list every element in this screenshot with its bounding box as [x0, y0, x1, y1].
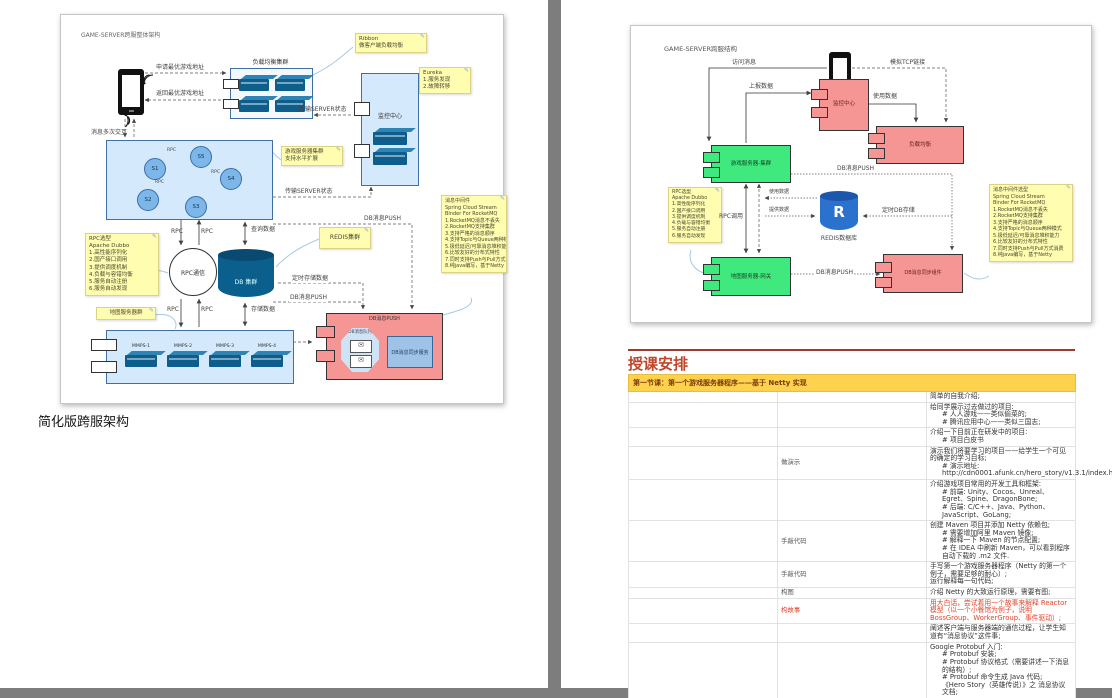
note-line: REDIS集群 [323, 234, 367, 242]
server-node: S3 [185, 196, 207, 218]
label-rpc: RPC [167, 307, 179, 314]
label-store-data: 存储数据 [251, 307, 275, 314]
label-rpc: RPC [201, 307, 213, 314]
monitor-center-box: 监控中心 [819, 79, 869, 131]
section-title: 授课安排 [628, 353, 688, 374]
sticky-note-mq: 消息中间件Spring Cloud StreamBinder For Rocke… [441, 195, 507, 273]
label-rpc-edge: RPC [155, 181, 164, 186]
port-tab [223, 79, 239, 89]
db-cluster-cylinder: DB 集群 [218, 255, 274, 297]
schedule-line: 阐述客户端与服务器端的通信过程，让学生知道有“消息协议”这件事; [930, 625, 1072, 640]
server-icon [373, 132, 407, 145]
schedule-cell-content: 介绍一下目前正在研发中的项目:# 项目白皮书 [927, 428, 1076, 446]
sticky-note-ribbon: Ribbon做客户端负载均衡 [355, 33, 427, 53]
schedule-row: 手敲代码创建 Maven 项目并添加 Netty 依赖包;# 需要增加阿里 Ma… [629, 521, 1076, 562]
sticky-note-map-server: 地图服务器群 [96, 307, 156, 320]
db-message-queue-octagon: DB消息队列 ✉ ✉ [341, 328, 379, 372]
port-tab [91, 361, 117, 373]
label-visit-message: 访问消息 [731, 60, 757, 67]
schedule-cell-spacer [629, 562, 778, 588]
schedule-row: 阐述客户端与服务器端的通信过程，让学生知道有“消息协议”这件事; [629, 624, 1076, 642]
note-line: 2.故障转移 [423, 84, 467, 91]
label-timed-store: 定时存储数据 [291, 276, 329, 283]
server-icon [275, 79, 305, 91]
schedule-row: 做演示演示我们将要学习的项目——给学生一个可见的确定的学习目标;# 演示地址: … [629, 446, 1076, 479]
note-line: 6.比较友好的分布式特性 [445, 250, 503, 257]
schedule-row: 构图介绍 Netty 的大致运行原理，需要有图; [629, 588, 1076, 599]
db-message-component-box: DB消息PUSH DB消息队列 ✉ ✉ DB消息同步服务 [326, 313, 443, 380]
schedule-line: # 后端: C/C++、Java、Python、JavaScript、GoLan… [930, 504, 1072, 519]
schedule-line: 用大白话，尝试着用一个故事来解释 Reactor 模型（以一个小餐馆为例子，说明… [930, 600, 1072, 623]
left-diagram-panel: GAME-SERVER跨服整体架构 申请最优游戏地址 返回最优游戏地址 消息多次… [60, 14, 504, 404]
load-balancer-title: 负载均衡集群 [230, 60, 311, 67]
port-tab [91, 339, 117, 351]
page-gap-vertical [548, 0, 561, 698]
db-message-queue-label: DB消息队列 [341, 331, 379, 336]
port-tab [811, 89, 828, 100]
label-rpc: RPC [171, 229, 183, 236]
game-server-cluster-box: 游戏服务器-集群 [711, 145, 791, 183]
sticky-note-rpc: RPC选型Apache Dubbo1.高性能序列化2.国产接口调用3.提供调度机… [85, 233, 159, 296]
label-db-push: DB消息PUSH [363, 216, 402, 223]
schedule-table: 第一节课：第一个游戏服务器程序——基于 Netty 实现 简单的自我介绍;给同学… [628, 374, 1076, 698]
label-db-push-top: DB消息PUSH [836, 166, 875, 173]
server-label: MMPS-1 [125, 344, 157, 349]
note-line: 2.国产接口调用 [89, 257, 155, 264]
map-server-cluster-box: MMPS-1 MMPS-2 MMPS-3 MMPS-4 [106, 330, 294, 384]
sticky-note-redis: REDIS集群 [319, 227, 371, 249]
schedule-cell-content: 用大白话，尝试着用一个故事来解释 Reactor 模型（以一个小餐馆为例子，说明… [927, 598, 1076, 624]
label-rpc-call: RPC调用 [719, 214, 743, 221]
label-message-exchange: 消息多次交互 [91, 130, 127, 137]
schedule-cell-label [778, 624, 927, 642]
label-tcp-link: 模拟TCP链接 [889, 60, 926, 67]
schedule-cell-label: 构图 [778, 588, 927, 599]
game-server-nodes-box: S1 S5 S2 S4 S3 RPC RPC RPC [106, 140, 273, 220]
server-node: S4 [220, 168, 242, 190]
label-server-state-2: 传输SERVER状态 [285, 189, 333, 196]
rpc-communication-circle: RPC通信 [169, 248, 217, 296]
schedule-row: Google Protobuf 入门:# Protobuf 安装;# Proto… [629, 642, 1076, 698]
note-line: 做客户端负载均衡 [359, 43, 423, 50]
schedule-row: 构故事用大白话，尝试着用一个故事来解释 Reactor 模型（以一个小餐馆为例子… [629, 598, 1076, 624]
schedule-cell-label [778, 392, 927, 403]
schedule-cell-content: 手写第一个游戏服务器程序（Netty 的第一个例子，需要足够的耐心）;运行解释每… [927, 562, 1076, 588]
document-view: GAME-SERVER跨服整体架构 申请最优游戏地址 返回最优游戏地址 消息多次… [0, 0, 1112, 698]
port-tab [703, 167, 720, 178]
port-tab [223, 99, 239, 109]
server-icon: MMPS-1 [125, 355, 157, 367]
right-diagram-connectors [631, 26, 1091, 322]
label-response-address: 返回最优游戏地址 [156, 91, 204, 98]
schedule-cell-spacer [629, 521, 778, 562]
right-diagram-panel: GAME-SERVER跨服结构 访问消息 模拟TCP链接 监控中心 上报数据 使… [630, 25, 1092, 323]
sticky-note-mq: 消息中间件选型Spring Cloud StreamBinder For Roc… [989, 184, 1073, 262]
server-icon: MMPS-3 [209, 355, 241, 367]
port-tab [811, 107, 828, 118]
left-page-caption: 简化版跨服架构 [38, 411, 129, 430]
schedule-cell-label: 手敲代码 [778, 521, 927, 562]
db-sync-component-label: DB消息同步组件 [884, 271, 962, 277]
schedule-cell-content: 创建 Maven 项目并添加 Netty 依赖包;# 需要增加阿里 Maven … [927, 521, 1076, 562]
schedule-row: 简单的自我介绍; [629, 392, 1076, 403]
envelope-icon: ✉ [350, 340, 372, 353]
note-line: Binder For RocketMQ [445, 211, 503, 218]
server-label: MMPS-2 [167, 344, 199, 349]
label-db-push-2: DB消息PUSH [289, 295, 328, 302]
schedule-cell-label: 做演示 [778, 446, 927, 479]
note-line: RPC选型 [89, 236, 155, 243]
note-line: 支持水平扩展 [285, 156, 339, 163]
schedule-line: # 演示地址: http://cdn0001.afunk.cn/hero_sto… [930, 463, 1072, 478]
server-node: S2 [137, 189, 159, 211]
label-rpc: RPC [201, 229, 213, 236]
load-balancer-label: 负载均衡 [877, 142, 963, 148]
server-label: MMPS-4 [251, 344, 283, 349]
label-db-push-bottom: DB消息PUSH [815, 270, 854, 277]
port-tab [875, 277, 892, 288]
db-sync-service-label: DB消息同步服务 [391, 349, 428, 356]
sticky-note-eureka: Eureka1.服务发现2.故障转移 [419, 67, 471, 94]
note-line: 2.RocketMQ支持集群 [445, 224, 503, 231]
schedule-cell-content: 阐述客户端与服务器端的通信过程，让学生知道有“消息协议”这件事; [927, 624, 1076, 642]
port-tab [354, 144, 370, 158]
port-tab [703, 280, 720, 291]
schedule-line: 运行解释每一句代码; [930, 578, 1072, 586]
port-tab [316, 326, 335, 338]
server-icon [239, 79, 269, 91]
note-line: 4.支持Topic与Queue两种模式 [445, 237, 503, 244]
schedule-cell-content: 给同学展示过去做过的项目:# 人人游戏——类似偷菜的;# 腾讯应用中心——类似三… [927, 402, 1076, 428]
note-line: 地图服务器群 [100, 310, 152, 317]
label-request-address: 申请最优游戏地址 [156, 65, 204, 72]
schedule-cell-spacer [629, 428, 778, 446]
label-rpc-edge: RPC [211, 171, 220, 176]
monitor-center-label: 监控中心 [362, 114, 418, 121]
schedule-line: # 项目白皮书 [930, 437, 1072, 445]
phone-icon [118, 69, 144, 115]
schedule-cell-content: 演示我们将要学习的项目——给学生一个可见的确定的学习目标;# 演示地址: htt… [927, 446, 1076, 479]
schedule-cell-spacer [629, 402, 778, 428]
schedule-row: 介绍一下目前正在研发中的项目:# 项目白皮书 [629, 428, 1076, 446]
schedule-line: # 腾讯应用中心——类似三国志; [930, 419, 1072, 427]
redis-icon: R [820, 196, 858, 230]
schedule-cell-spacer [629, 480, 778, 521]
schedule-row: 给同学展示过去做过的项目:# 人人游戏——类似偷菜的;# 腾讯应用中心——类似三… [629, 402, 1076, 428]
note-line: 3.提供调度机制 [89, 265, 155, 272]
server-label: MMPS-3 [209, 344, 241, 349]
schedule-row: 介绍游戏项目常用的开发工具和框架:# 前端: Unity、Cocos、Unrea… [629, 480, 1076, 521]
note-line: 4.支持Topic与Queue两种模式 [993, 226, 1069, 233]
db-sync-component-box: DB消息同步组件 [883, 254, 963, 293]
port-tab [868, 148, 885, 159]
server-node: S1 [144, 158, 166, 180]
schedule-line: 介绍 Netty 的大致运行原理，需要有图; [930, 589, 1072, 597]
schedule-cell-spacer [629, 624, 778, 642]
schedule-cell-label: 手敲代码 [778, 562, 927, 588]
note-line: 6.服务自动发现 [89, 286, 155, 293]
schedule-table-body: 简单的自我介绍;给同学展示过去做过的项目:# 人人游戏——类似偷菜的;# 腾讯应… [629, 392, 1076, 698]
label-query-data: 查询数据 [251, 227, 275, 234]
sticky-note-rpc: RPC选型Apache Dubbo1.高性能序列化2.国产接口调用3.提供调度机… [668, 187, 722, 243]
label-use-data-1: 使用数据 [873, 94, 897, 101]
note-line: 5.服务自动注册 [89, 279, 155, 286]
db-sync-service-box: DB消息同步服务 [387, 336, 433, 368]
schedule-line: # 在 IDEA 中刷新 Maven，可以看到程序自动下载的 .m2 文件. [930, 545, 1072, 560]
redis-label: REDIS数据库 [811, 236, 867, 243]
schedule-line: 《Hero Story（英雄传说）》之 消息协议文档; [930, 682, 1072, 697]
game-server-cluster-label: 游戏服务器-集群 [712, 161, 790, 167]
load-balancer-box: 负载均衡 [876, 126, 964, 164]
monitor-center-label: 监控中心 [820, 101, 868, 107]
map-server-gateway-label: 地图服务器-网关 [712, 274, 790, 280]
schedule-cell-content: 简单的自我介绍; [927, 392, 1076, 403]
schedule-cell-spacer [629, 392, 778, 403]
envelope-icon: ✉ [350, 355, 372, 368]
left-diagram-title: GAME-SERVER跨服整体架构 [81, 33, 160, 40]
schedule-line: 演示我们将要学习的项目——给学生一个可见的确定的学习目标; [930, 448, 1072, 463]
schedule-line: # 前端: Unity、Cocos、Unreal、Egret、Spine、Dra… [930, 489, 1072, 504]
map-server-gateway-box: 地图服务器-网关 [711, 257, 791, 296]
schedule-cell-content: 介绍游戏项目常用的开发工具和框架:# 前端: Unity、Cocos、Unrea… [927, 480, 1076, 521]
server-node: S5 [190, 146, 212, 168]
label-rpc-edge: RPC [167, 149, 176, 154]
server-icon [239, 100, 269, 112]
note-line: 4.负载与容错均衡 [89, 272, 155, 279]
schedule-line: # Protobuf 协议格式（需要讲述一下消息的结构）; [930, 659, 1072, 674]
monitor-center-box: 监控中心 [361, 73, 419, 186]
server-icon: MMPS-2 [167, 355, 199, 367]
note-line: 8.纯java编写，基于Netty [993, 252, 1069, 259]
section-divider [628, 349, 1075, 351]
note-line: 8.纯java编写，基于Netty [445, 263, 503, 270]
note-line: 6.服务自动发现 [672, 234, 718, 240]
label-db-push-inner: DB消息PUSH [327, 317, 442, 323]
db-cluster-label: DB 集群 [218, 277, 274, 286]
schedule-header-row: 第一节课：第一个游戏服务器程序——基于 Netty 实现 [629, 375, 1076, 392]
port-tab [316, 350, 335, 362]
schedule-cell-spacer [629, 588, 778, 599]
label-timed-db-store: 定时DB存储 [881, 208, 916, 215]
label-server-state-1: 传输SERVER状态 [299, 107, 347, 114]
schedule-row: 手敲代码手写第一个游戏服务器程序（Netty 的第一个例子，需要足够的耐心）;运… [629, 562, 1076, 588]
schedule-cell-spacer [629, 642, 778, 698]
schedule-cell-label: 构故事 [778, 598, 927, 624]
schedule-cell-content: Google Protobuf 入门:# Protobuf 安装;# Proto… [927, 642, 1076, 698]
schedule-cell-label [778, 428, 927, 446]
label-use-data-2: 使用数据 [768, 190, 790, 196]
schedule-cell-spacer [629, 446, 778, 479]
schedule-cell-label [778, 642, 927, 698]
right-diagram-title: GAME-SERVER跨服结构 [664, 46, 737, 53]
redis-r-letter: R [820, 203, 858, 221]
label-provide-data: 提供数据 [768, 208, 790, 214]
schedule-cell-spacer [629, 598, 778, 624]
server-icon: MMPS-4 [251, 355, 283, 367]
label-report-data: 上报数据 [749, 84, 773, 91]
schedule-cell-label [778, 402, 927, 428]
schedule-line: 简单的自我介绍; [930, 393, 1072, 401]
schedule-cell-content: 介绍 Netty 的大致运行原理，需要有图; [927, 588, 1076, 599]
schedule-cell-label [778, 480, 927, 521]
schedule-header: 第一节课：第一个游戏服务器程序——基于 Netty 实现 [629, 375, 1076, 392]
sticky-note-game-server: 游戏服务器集群支持水平扩展 [281, 146, 343, 166]
server-icon [373, 152, 407, 165]
